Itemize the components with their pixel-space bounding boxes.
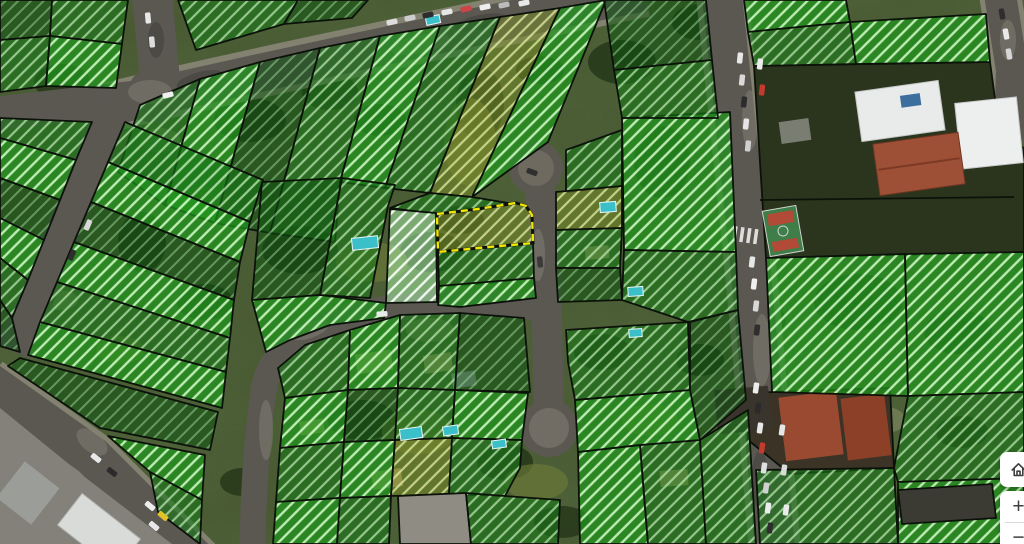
dark-roof-strip: [898, 484, 996, 524]
parcel-polygon[interactable]: [276, 442, 344, 502]
zoom-in-button[interactable]: +: [1000, 494, 1024, 520]
parcel-polygon[interactable]: [0, 36, 50, 92]
parcel-polygon[interactable]: [756, 468, 898, 544]
parcel-polygon[interactable]: [46, 36, 122, 88]
parcel-polygon[interactable]: [640, 440, 706, 544]
home-button[interactable]: [1000, 452, 1024, 487]
parcel-polygon[interactable]: [344, 388, 398, 442]
parcel-polygon[interactable]: [604, 0, 712, 70]
basketball-court: [762, 205, 803, 256]
map-canvas[interactable]: [0, 0, 1024, 544]
parcel-polygon[interactable]: [905, 252, 1024, 396]
parcel-polygon[interactable]: [614, 60, 718, 118]
parcel-polygon[interactable]: [273, 498, 340, 544]
zoom-control: + −: [1000, 491, 1024, 544]
parcel-polygon[interactable]: [556, 228, 622, 268]
parcel-polygon[interactable]: [850, 14, 990, 64]
parcel-polygon[interactable]: [455, 313, 530, 392]
zoom-divider: [1005, 522, 1024, 523]
zoom-out-button[interactable]: −: [1000, 525, 1024, 544]
parcel-polygon[interactable]: [391, 438, 452, 496]
parcel-polygon[interactable]: [0, 0, 52, 40]
parcel-polygon[interactable]: [622, 112, 736, 252]
parcel-polygon[interactable]: [398, 313, 460, 390]
parcel-polygon[interactable]: [340, 440, 395, 498]
parcel-polygon[interactable]: [766, 254, 908, 396]
paved-lot: [398, 493, 471, 544]
parcel-polygon[interactable]: [566, 322, 690, 400]
parcel-polygon[interactable]: [386, 209, 437, 303]
parcel-polygon[interactable]: [556, 268, 622, 302]
parcel-polygon[interactable]: [578, 445, 648, 544]
parcel-polygon[interactable]: [337, 496, 391, 544]
parcel-polygon[interactable]: [466, 493, 560, 544]
map-viewer: + −: [0, 0, 1024, 544]
parcel-polygon[interactable]: [452, 390, 528, 440]
home-icon: [1009, 460, 1024, 479]
parcel-polygon[interactable]: [280, 390, 348, 448]
